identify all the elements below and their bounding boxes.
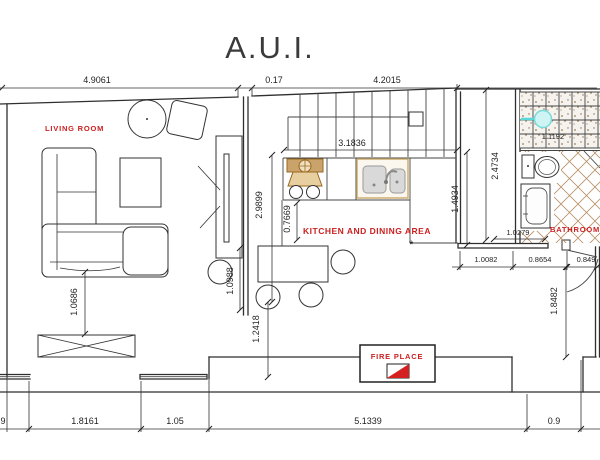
shower-head: [535, 111, 552, 128]
toilet: [522, 155, 559, 178]
window-unit: [38, 335, 135, 357]
chair: [299, 283, 323, 307]
dim-sofa-to-wall: 1.0686: [69, 288, 79, 316]
floor-plan-canvas: A.U.I. 4.9061 0.17 4.2015: [0, 0, 600, 460]
living-room: LIVING ROOM: [42, 100, 242, 284]
dim-top-right-width: 4.2015: [373, 75, 401, 85]
staircase: 3.1836: [281, 89, 460, 158]
dim-bottom-right-width: 0.9: [548, 416, 561, 426]
chair: [331, 250, 355, 274]
dim-partition-lower: 1.0988: [225, 267, 235, 295]
dim-hall-height: 2.9899: [254, 191, 264, 219]
floor-plan-drawing: A.U.I. 4.9061 0.17 4.2015: [0, 0, 600, 460]
shower-area: 1.1192: [520, 92, 600, 148]
dim-counter-offset: 0.7669: [282, 205, 292, 233]
round-table: [128, 100, 166, 138]
dim-stairs-width: 3.1836: [338, 138, 366, 148]
dim-bottom-window-width: 1.8161: [71, 416, 99, 426]
dim-bathroom-width: 1.0279: [507, 228, 530, 237]
drawing-title: A.U.I.: [225, 30, 315, 65]
dim-bath-door-width: 0.8654: [529, 255, 552, 264]
dining-table: [258, 246, 328, 282]
sub-dimensions: 1.0082 0.8654 0.849: [452, 251, 600, 270]
dim-kitchen-right-height: 1.4934: [450, 185, 460, 213]
dim-bathroom-height: 2.4734: [490, 152, 500, 180]
dim-passage-height: 1.2418: [251, 315, 261, 343]
kitchen-sink: [357, 159, 408, 198]
dim-below-bath-left: 1.0082: [475, 255, 498, 264]
dim-entry-hall-height: 1.8482: [549, 287, 559, 315]
side-table: [166, 100, 208, 141]
kitchen-label: KITCHEN AND DINING AREA: [303, 226, 431, 236]
bathroom-sink: [521, 184, 550, 228]
dim-bottom-wall-segment: 1.05: [166, 416, 184, 426]
bottom-dimensions: 9 1.8161 1.05 5.1339 0.9: [0, 360, 600, 432]
living-room-label: LIVING ROOM: [45, 124, 104, 133]
dim-bottom-main-width: 5.1339: [354, 416, 382, 426]
fireplace-icon: [387, 364, 409, 378]
plan-marker: *: [409, 239, 414, 251]
fireplace-label: FIRE PLACE: [371, 352, 424, 361]
fireplace: FIRE PLACE: [360, 345, 435, 382]
bathroom-label: BATHROOM: [550, 225, 600, 234]
dim-shower-width: 1.1192: [542, 132, 564, 141]
dim-top-wall-thickness: 0.17: [265, 75, 283, 85]
tv-cabinet: [198, 136, 242, 258]
coffee-table: [120, 158, 161, 207]
newel-post: [409, 112, 423, 126]
dim-bottom-partial: 9: [0, 416, 5, 426]
dim-top-living-width: 4.9061: [83, 75, 111, 85]
dim-below-bath-right: 0.849: [577, 255, 596, 264]
stove: [287, 159, 323, 199]
bathroom: 1.1192 BATHROOM 1.0279: [491, 92, 600, 243]
